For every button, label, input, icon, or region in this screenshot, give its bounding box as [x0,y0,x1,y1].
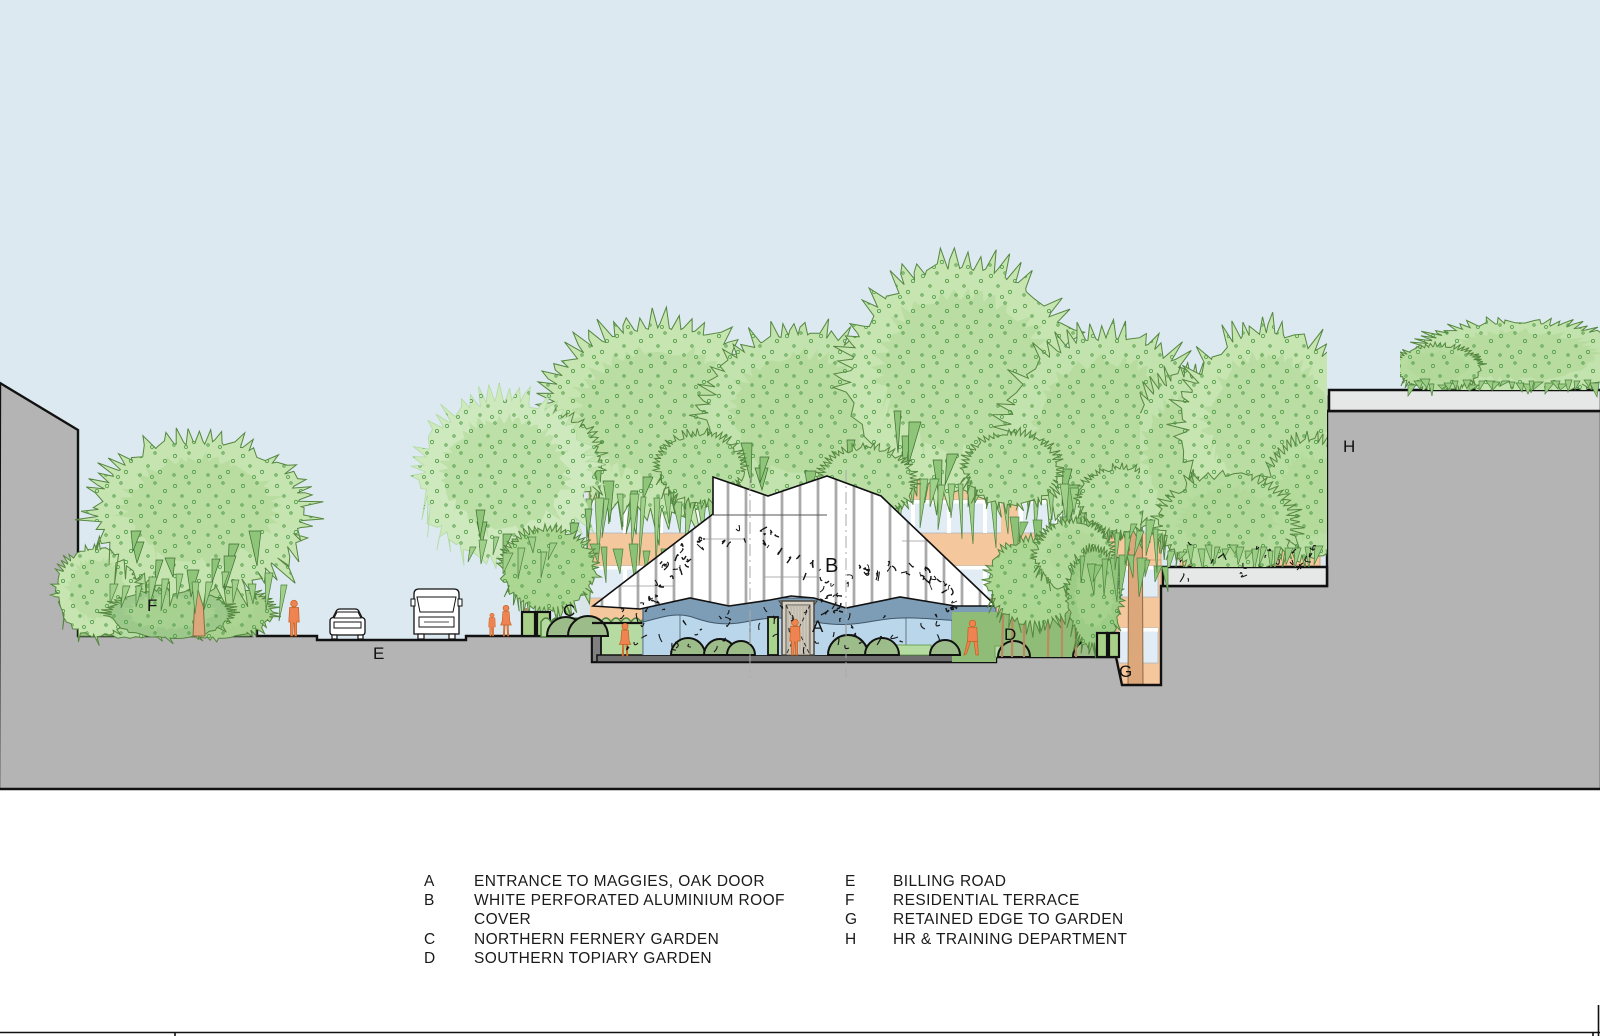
svg-text:ENTRANCE TO MAGGIES, OAK DOOR: ENTRANCE TO MAGGIES, OAK DOOR [474,873,765,890]
svg-text:H: H [1343,437,1355,456]
svg-text:F: F [147,596,157,615]
svg-text:HR & TRAINING DEPARTMENT: HR & TRAINING DEPARTMENT [893,931,1128,948]
svg-text:COVER: COVER [474,911,531,928]
svg-text:RESIDENTIAL TERRACE: RESIDENTIAL TERRACE [893,892,1080,909]
svg-text:RETAINED EDGE TO GARDEN: RETAINED EDGE TO GARDEN [893,911,1124,928]
svg-text:C: C [563,601,575,620]
svg-text:D: D [424,950,436,967]
svg-text:NORTHERN FERNERY GARDEN: NORTHERN FERNERY GARDEN [474,931,719,948]
svg-text:WHITE PERFORATED ALUMINIUM ROO: WHITE PERFORATED ALUMINIUM ROOF [474,892,785,909]
svg-text:B: B [825,555,838,577]
svg-text:E: E [845,873,856,890]
svg-text:A: A [424,873,435,890]
svg-text:B: B [424,892,435,909]
svg-text:C: C [424,931,436,948]
svg-text:F: F [845,892,855,909]
svg-text:G: G [1119,662,1132,681]
svg-text:H: H [845,931,857,948]
svg-text:G: G [845,911,857,928]
svg-text:BILLING ROAD: BILLING ROAD [893,873,1006,890]
svg-text:D: D [1004,625,1016,644]
svg-text:E: E [373,644,384,663]
svg-text:A: A [812,617,824,636]
svg-text:SOUTHERN TOPIARY GARDEN: SOUTHERN TOPIARY GARDEN [474,950,712,967]
